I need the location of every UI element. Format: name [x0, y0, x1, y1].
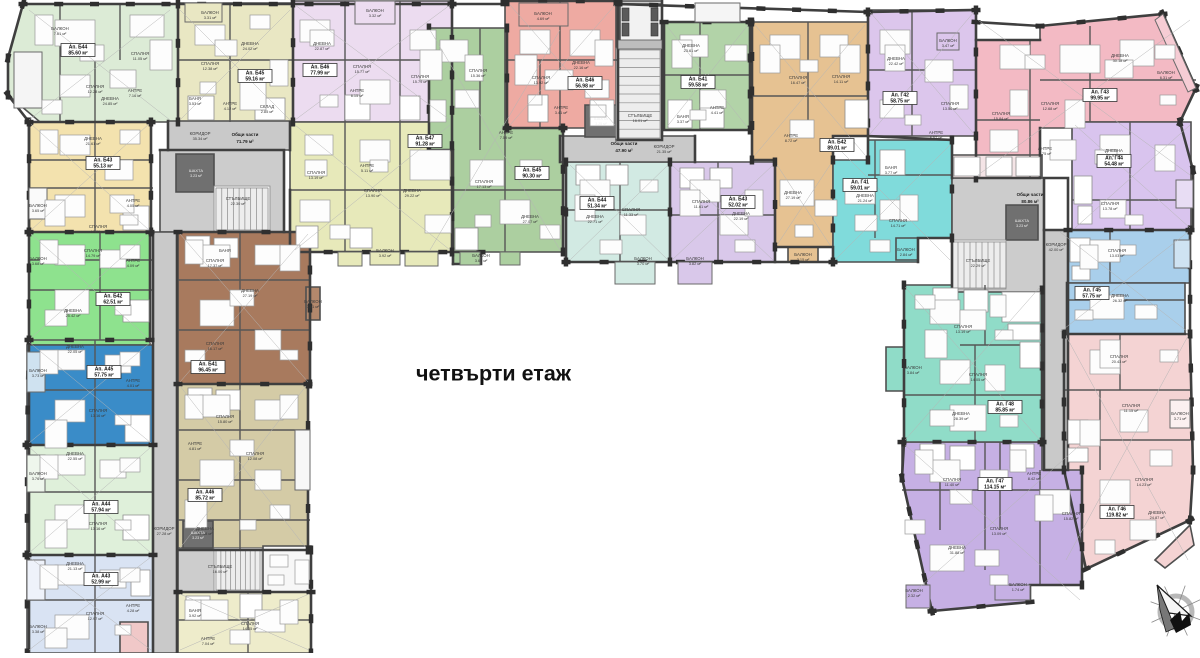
svg-text:16.01 м²: 16.01 м²: [633, 118, 648, 123]
svg-text:7.16 м²: 7.16 м²: [129, 93, 142, 98]
svg-text:16.17 м²: 16.17 м²: [208, 346, 223, 351]
svg-text:4.69 м²: 4.69 м²: [537, 16, 550, 21]
svg-text:21.35 м²: 21.35 м²: [657, 149, 672, 154]
svg-text:24.85 м²: 24.85 м²: [103, 101, 118, 106]
svg-text:22.29 м²: 22.29 м²: [971, 263, 986, 268]
svg-text:85.72 м²: 85.72 м²: [195, 496, 215, 502]
svg-text:119.82 м²: 119.82 м²: [1106, 513, 1128, 519]
svg-text:3.41 м²: 3.41 м²: [555, 110, 568, 115]
svg-text:15.77 м²: 15.77 м²: [355, 69, 370, 74]
svg-text:27.19 м²: 27.19 м²: [243, 293, 258, 298]
svg-text:14.79 м²: 14.79 м²: [86, 253, 101, 258]
svg-text:15.36 м²: 15.36 м²: [471, 73, 486, 78]
svg-text:20.43 м²: 20.43 м²: [1112, 359, 1127, 364]
svg-text:3.92 м²: 3.92 м²: [189, 613, 202, 618]
svg-text:3.61 м²: 3.61 м²: [307, 304, 320, 309]
svg-text:62.51 м²: 62.51 м²: [103, 300, 123, 306]
svg-text:1.74 м²: 1.74 м²: [1012, 587, 1025, 592]
svg-text:3.76 м²: 3.76 м²: [32, 476, 45, 481]
svg-text:3.84 м²: 3.84 м²: [907, 370, 920, 375]
svg-text:59.01 м²: 59.01 м²: [850, 186, 870, 192]
svg-text:13.16 м²: 13.16 м²: [91, 413, 106, 418]
svg-text:25.42 м²: 25.42 м²: [66, 313, 81, 318]
svg-text:13.19 м²: 13.19 м²: [956, 329, 971, 334]
svg-text:13.09 м²: 13.09 м²: [992, 531, 1007, 536]
svg-text:3.70 м²: 3.70 м²: [637, 261, 650, 266]
svg-text:21.24 м²: 21.24 м²: [858, 198, 873, 203]
svg-text:6.15 м²: 6.15 м²: [351, 93, 364, 98]
svg-text:16.47 м²: 16.47 м²: [791, 80, 806, 85]
svg-text:четвърти етаж: четвърти етаж: [416, 362, 572, 386]
svg-text:ШАХТА: ШАХТА: [1015, 218, 1029, 223]
svg-text:56.98 м²: 56.98 м²: [575, 84, 595, 90]
svg-text:12.28 м²: 12.28 м²: [88, 89, 103, 94]
svg-text:ШАХТА: ШАХТА: [191, 530, 205, 535]
svg-text:42.00 м²: 42.00 м²: [1049, 247, 1064, 252]
svg-text:3.92 м²: 3.92 м²: [379, 253, 392, 258]
svg-text:22.19 м²: 22.19 м²: [734, 216, 749, 221]
svg-text:114.15 м²: 114.15 м²: [984, 485, 1006, 491]
svg-text:3.32 м²: 3.32 м²: [369, 13, 382, 18]
svg-text:29.22 м²: 29.22 м²: [405, 193, 420, 198]
svg-text:Общи части: Общи части: [232, 131, 259, 137]
svg-text:5.11 м²: 5.11 м²: [361, 168, 374, 173]
svg-text:11.15 м²: 11.15 м²: [1124, 408, 1139, 413]
svg-text:85.85 м²: 85.85 м²: [995, 408, 1015, 414]
svg-text:4.12 м²: 4.12 м²: [224, 106, 237, 111]
svg-text:21.61 м²: 21.61 м²: [86, 141, 101, 146]
svg-text:4.28 м²: 4.28 м²: [127, 608, 140, 613]
svg-text:22.05 м²: 22.05 м²: [68, 349, 83, 354]
svg-text:ШАХТА: ШАХТА: [189, 168, 203, 173]
svg-text:4.05 м²: 4.05 м²: [127, 203, 140, 208]
svg-text:Общи части: Общи части: [611, 140, 638, 146]
svg-text:30.18 м²: 30.18 м²: [1113, 58, 1128, 63]
svg-text:15.84 м²: 15.84 м²: [994, 116, 1009, 121]
svg-text:31.88 м²: 31.88 м²: [950, 550, 965, 555]
svg-text:11.33 м²: 11.33 м²: [624, 212, 639, 217]
svg-text:8.75 м²: 8.75 м²: [1039, 151, 1052, 156]
svg-text:11.40 м²: 11.40 м²: [945, 482, 960, 487]
svg-text:3.37 м²: 3.37 м²: [677, 119, 690, 124]
svg-text:13.19 м²: 13.19 м²: [309, 175, 324, 180]
svg-text:12.08 м²: 12.08 м²: [248, 456, 263, 461]
svg-text:3.47 м²: 3.47 м²: [942, 43, 955, 48]
svg-text:35.34 м²: 35.34 м²: [193, 136, 208, 141]
svg-text:3.73 м²: 3.73 м²: [32, 373, 45, 378]
svg-text:7.61 м²: 7.61 м²: [54, 31, 67, 36]
svg-text:57.75 м²: 57.75 м²: [94, 373, 114, 379]
svg-text:15.80 м²: 15.80 м²: [218, 419, 233, 424]
svg-text:11.05 м²: 11.05 м²: [133, 56, 148, 61]
svg-text:59.16 м²: 59.16 м²: [245, 77, 265, 83]
svg-text:Общи части: Общи части: [1017, 191, 1044, 197]
svg-text:22.87 м²: 22.87 м²: [315, 46, 330, 51]
svg-text:3.15 м²: 3.15 м²: [797, 257, 810, 262]
svg-text:3.53 м²: 3.53 м²: [189, 101, 202, 106]
svg-text:52.99 м²: 52.99 м²: [91, 580, 111, 586]
svg-text:3.82 м²: 3.82 м²: [689, 261, 702, 266]
svg-text:3.71 м²: 3.71 м²: [1174, 416, 1187, 421]
svg-text:96.45 м²: 96.45 м²: [198, 368, 218, 374]
svg-text:27.07 м²: 27.07 м²: [523, 219, 538, 224]
svg-text:28.39 м²: 28.39 м²: [954, 416, 969, 421]
svg-text:22.55 м²: 22.55 м²: [68, 456, 83, 461]
svg-text:12.38 м²: 12.38 м²: [203, 66, 218, 71]
svg-text:3.23 м²: 3.23 м²: [192, 536, 204, 540]
svg-text:2.32 м²: 2.32 м²: [908, 593, 921, 598]
svg-text:16.00 м²: 16.00 м²: [213, 569, 228, 574]
svg-text:21.13 м²: 21.13 м²: [68, 566, 83, 571]
svg-text:55.13 м²: 55.13 м²: [93, 164, 113, 170]
svg-text:21.97 м²: 21.97 м²: [1107, 153, 1122, 158]
svg-text:22.42 м²: 22.42 м²: [889, 61, 904, 66]
svg-text:57.94 м²: 57.94 м²: [91, 508, 111, 514]
svg-text:59.58 м²: 59.58 м²: [688, 83, 708, 89]
svg-text:77.99 м²: 77.99 м²: [310, 71, 330, 77]
svg-text:11.61 м²: 11.61 м²: [694, 204, 709, 209]
svg-text:7.04 м²: 7.04 м²: [202, 641, 215, 646]
svg-text:3.31 м²: 3.31 м²: [204, 15, 217, 20]
svg-text:27.28 м²: 27.28 м²: [157, 531, 172, 536]
svg-text:3.77 м²: 3.77 м²: [885, 170, 898, 175]
svg-text:БАНЯ: БАНЯ: [219, 248, 231, 253]
svg-text:3.65 м²: 3.65 м²: [32, 208, 45, 213]
svg-text:14.23 м²: 14.23 м²: [1137, 482, 1152, 487]
svg-text:4.81 м²: 4.81 м²: [189, 446, 202, 451]
svg-text:13.50 м²: 13.50 м²: [943, 106, 958, 111]
svg-text:85.60 м²: 85.60 м²: [68, 51, 88, 57]
svg-text:89.01 м²: 89.01 м²: [827, 146, 847, 152]
svg-text:90.30 м²: 90.30 м²: [522, 174, 542, 180]
svg-text:4.41 м²: 4.41 м²: [711, 110, 724, 115]
svg-text:8.72 м²: 8.72 м²: [785, 138, 798, 143]
svg-text:17.13 м²: 17.13 м²: [477, 184, 492, 189]
svg-text:22.16 м²: 22.16 м²: [574, 65, 589, 70]
svg-text:22.30 м²: 22.30 м²: [231, 201, 246, 206]
svg-text:13.90 м²: 13.90 м²: [366, 193, 381, 198]
svg-text:99.95 м²: 99.95 м²: [1090, 96, 1110, 102]
svg-text:4.09 м²: 4.09 м²: [127, 263, 140, 268]
svg-text:7.59 м²: 7.59 м²: [500, 135, 513, 140]
svg-text:24.02 м²: 24.02 м²: [243, 46, 258, 51]
svg-text:80.86 м²: 80.86 м²: [1021, 199, 1039, 204]
svg-text:8.42 м²: 8.42 м²: [1028, 476, 1041, 481]
svg-text:4.01 м²: 4.01 м²: [127, 383, 140, 388]
svg-text:15.82 м²: 15.82 м²: [1064, 516, 1079, 521]
svg-text:17.37 м²: 17.37 м²: [208, 263, 223, 268]
svg-text:27.19 м²: 27.19 м²: [786, 195, 801, 200]
svg-text:58.75 м²: 58.75 м²: [890, 99, 910, 105]
svg-text:2.85 м²: 2.85 м²: [261, 109, 274, 114]
svg-text:6.31 м²: 6.31 м²: [1160, 75, 1173, 80]
svg-text:3.68 м²: 3.68 м²: [32, 261, 45, 266]
svg-text:22.71 м²: 22.71 м²: [588, 219, 603, 224]
svg-text:14.05 м²: 14.05 м²: [971, 377, 986, 382]
svg-text:3.38 м²: 3.38 м²: [32, 629, 45, 634]
svg-text:51.34 м²: 51.34 м²: [587, 204, 607, 210]
svg-text:3.23 м²: 3.23 м²: [1016, 224, 1028, 228]
svg-text:23.61 м²: 23.61 м²: [684, 48, 699, 53]
svg-text:91.28 м²: 91.28 м²: [415, 142, 435, 148]
svg-text:14.11 м²: 14.11 м²: [834, 79, 849, 84]
svg-text:12.68 м²: 12.68 м²: [1043, 106, 1058, 111]
svg-text:24.87 м²: 24.87 м²: [1150, 515, 1165, 520]
svg-text:47.90 м²: 47.90 м²: [615, 148, 633, 153]
svg-text:6.52 м²: 6.52 м²: [930, 135, 943, 140]
svg-text:14.35 м²: 14.35 м²: [243, 626, 258, 631]
svg-text:3.65 м²: 3.65 м²: [475, 258, 488, 263]
svg-text:57.75 м²: 57.75 м²: [1082, 294, 1102, 300]
svg-text:54.48 м²: 54.48 м²: [1104, 162, 1124, 168]
svg-text:13.03 м²: 13.03 м²: [1110, 253, 1125, 258]
svg-text:15.79 м²: 15.79 м²: [413, 79, 428, 84]
svg-text:13.78 м²: 13.78 м²: [1103, 206, 1118, 211]
svg-text:13.16 м²: 13.16 м²: [91, 526, 106, 531]
svg-text:26.32 м²: 26.32 м²: [1113, 298, 1128, 303]
svg-text:71.79 м²: 71.79 м²: [236, 139, 254, 144]
svg-text:3.25 м²: 3.25 м²: [595, 122, 607, 126]
svg-text:3.23 м²: 3.23 м²: [190, 174, 202, 178]
svg-text:ШАХТА: ШАХТА: [594, 116, 608, 121]
svg-text:52.02 м²: 52.02 м²: [728, 203, 748, 209]
svg-text:13.92 м²: 13.92 м²: [534, 80, 549, 85]
svg-text:12.97 м²: 12.97 м²: [88, 616, 103, 621]
svg-text:2.84 м²: 2.84 м²: [900, 252, 913, 257]
svg-text:13.26 м²: 13.26 м²: [91, 229, 106, 234]
svg-text:14.71 м²: 14.71 м²: [891, 223, 906, 228]
